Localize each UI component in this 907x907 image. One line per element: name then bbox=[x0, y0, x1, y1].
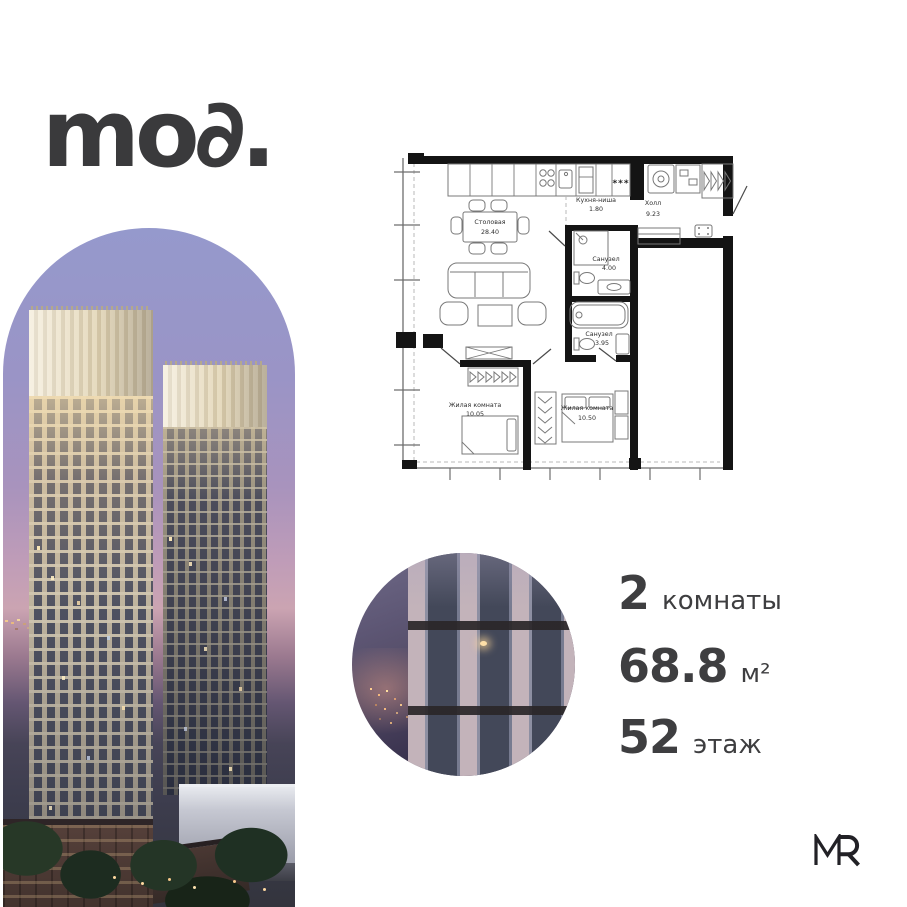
room-label-bath1: Санузел bbox=[592, 256, 619, 263]
floor-plan: *** bbox=[390, 150, 750, 485]
nightstand bbox=[615, 416, 628, 439]
sofa-group bbox=[440, 263, 546, 326]
armchair bbox=[440, 302, 468, 325]
room-area-bath2: 3.95 bbox=[595, 340, 609, 347]
room-area-kitchen: 1.80 bbox=[589, 206, 603, 213]
pillow bbox=[507, 419, 516, 451]
facade-closeup bbox=[408, 553, 575, 776]
spec-floor: 52 этаж bbox=[618, 710, 762, 764]
building-photo-arch bbox=[3, 228, 295, 907]
floor-label: этаж bbox=[693, 730, 762, 760]
wardrobe bbox=[535, 392, 556, 444]
tower-right-crown bbox=[163, 365, 267, 427]
brand-logo[interactable]: mo∂. bbox=[42, 88, 271, 182]
rooms-label: комнаты bbox=[662, 586, 782, 616]
spec-area: 68.8 м² bbox=[618, 639, 771, 693]
fridge-icon bbox=[579, 167, 593, 193]
room-area-dining: 28.40 bbox=[481, 229, 499, 236]
boiler-cabinet-icon bbox=[676, 165, 700, 193]
room-label-bedroom2: Жилая комната bbox=[561, 405, 614, 412]
city-lights bbox=[5, 620, 8, 622]
developer-logo-mr[interactable] bbox=[812, 834, 870, 868]
nightstand bbox=[615, 391, 628, 414]
toilet bbox=[574, 338, 579, 350]
sink bbox=[616, 334, 629, 354]
unit-photo-circle bbox=[352, 553, 575, 776]
dining-set bbox=[451, 200, 529, 254]
washer-icon bbox=[648, 165, 674, 193]
kitchen-counter: *** bbox=[448, 164, 630, 196]
street-lights bbox=[113, 876, 116, 879]
apartment-card: { "brand": { "logo_text": "mo∂." }, "dev… bbox=[0, 0, 907, 907]
room-area-bedroom2: 10.50 bbox=[578, 415, 596, 422]
room-label-kitchen: Кухня-ниша bbox=[576, 197, 616, 204]
area-value: 68.8 bbox=[618, 639, 728, 693]
chandelier-light bbox=[480, 641, 487, 646]
sofa bbox=[448, 263, 530, 298]
vanity-sink bbox=[598, 280, 630, 294]
toilet bbox=[574, 272, 579, 284]
room-label-dining: Столовая bbox=[474, 219, 505, 226]
area-unit: м² bbox=[741, 659, 771, 689]
room-label-hall: Холл bbox=[645, 200, 661, 207]
room-area-bath1: 4.00 bbox=[602, 265, 616, 272]
armchair bbox=[518, 302, 546, 325]
tower-left-crown bbox=[29, 310, 153, 396]
room-area-hall: 9.23 bbox=[646, 211, 660, 218]
rooms-count: 2 bbox=[618, 566, 649, 620]
tower-right-facade bbox=[163, 427, 267, 795]
coffee-table bbox=[478, 305, 512, 326]
room-area-bedroom1: 10.05 bbox=[466, 411, 484, 418]
spec-rooms: 2 комнаты bbox=[618, 566, 782, 620]
tv-cabinet bbox=[466, 347, 512, 359]
city-lights bbox=[370, 688, 372, 690]
electrical-panel-icon bbox=[695, 225, 712, 237]
stove-icon bbox=[540, 170, 554, 186]
trees bbox=[3, 777, 295, 907]
bathtub bbox=[570, 302, 628, 328]
floor-value: 52 bbox=[618, 710, 680, 764]
sink-icon bbox=[559, 170, 572, 188]
dining-table bbox=[463, 212, 517, 242]
window-ticks bbox=[394, 172, 700, 480]
freezer-marks: *** bbox=[612, 179, 629, 189]
room-label-bath2: Санузел bbox=[585, 331, 612, 338]
room-label-bedroom1: Жилая комната bbox=[449, 402, 502, 409]
tower-right bbox=[163, 365, 267, 795]
